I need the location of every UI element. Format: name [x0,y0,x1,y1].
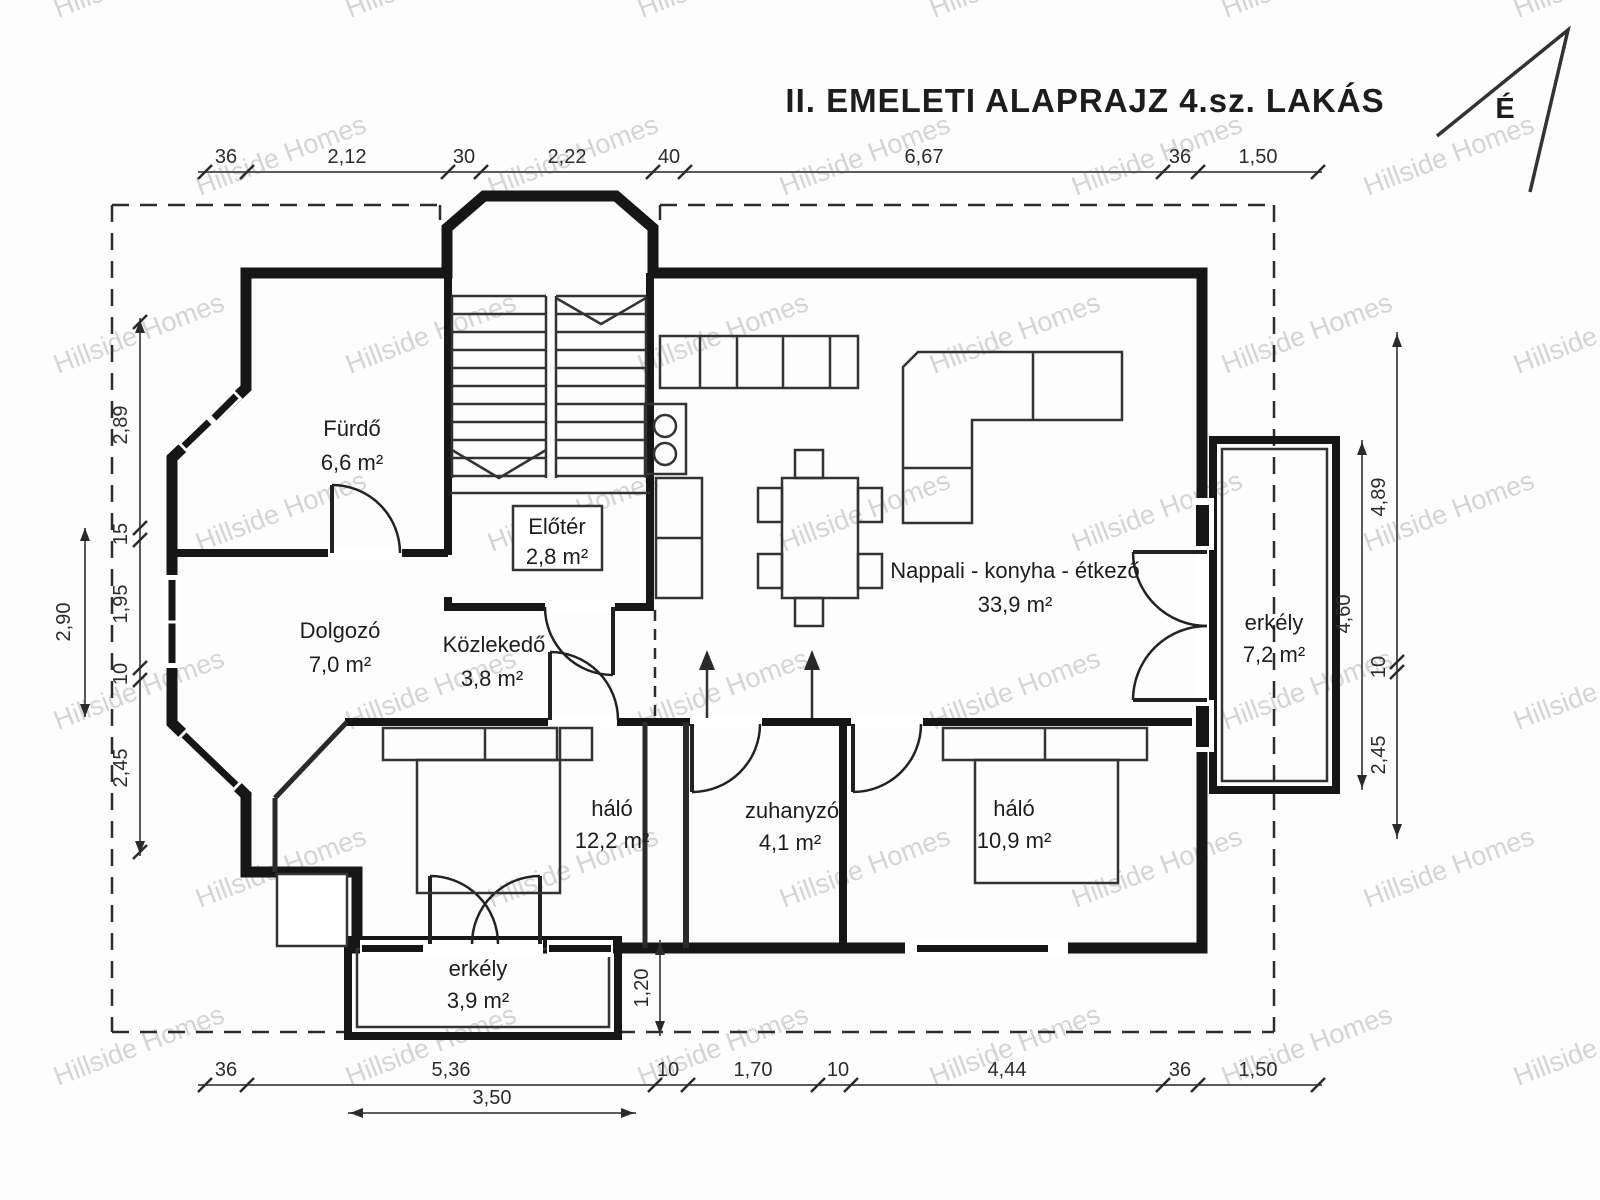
floor-plan-drawing: Hillside HomesHillside HomesHillside Hom… [0,0,1600,1200]
room-area-dolgozo: 7,0 m² [309,652,371,677]
dim-arrow-icon [1392,334,1402,347]
room-name-erkely-also: erkély [449,956,508,981]
furniture [277,336,1147,946]
plan-title: II. EMELETI ALAPRAJZ 4.sz. LAKÁS [785,82,1384,119]
wardrobe [277,874,347,946]
sidelight-top-icon [1196,505,1209,546]
door-zuhanyzo [692,724,760,792]
watermark-text: Hillside Homes [1217,287,1396,380]
nightstand [560,728,592,760]
dim-arrow-icon [621,1108,634,1118]
dim-bottom-7: 1,50 [1239,1059,1278,1081]
room-name-eloter: Előtér [528,514,585,539]
chair [758,488,782,522]
room-name-dolgozo: Dolgozó [300,618,381,643]
dim-left-3: 10 [110,663,132,685]
dim-top-6: 36 [1169,146,1191,168]
dim-balcony-depth: 1,20 [631,969,653,1008]
window-bottom-2-icon [549,945,611,952]
dim-bottom-4: 10 [827,1059,849,1081]
room-area-erkely-jobb: 7,2 m² [1243,642,1305,667]
watermark-text: Hillside Homes [925,287,1104,380]
dim-top-7: 1,50 [1239,146,1278,168]
watermark-text: Hillside Homes [633,0,812,24]
room-area-erkely-also: 3,9 m² [447,988,509,1013]
door-halo2 [853,724,921,792]
room-name-nappali: Nappali - konyha - étkező [890,558,1139,583]
north-arrow-label: É [1495,91,1514,125]
window-bottom-3-icon [917,945,1048,952]
bed-halo2 [943,728,1147,883]
dim-bottom-0: 36 [215,1059,237,1081]
bed-halo1 [383,728,592,893]
chair [795,598,823,626]
sidelight-bottom-icon [1196,706,1209,747]
room-area-zuhanyzo: 4,1 m² [759,830,821,855]
watermark-text: Hillside Homes [341,287,520,380]
watermark-text: Hillside Homes [49,287,228,380]
window-bay-bottom-icon [184,735,236,785]
dim-bottom-1: 5,36 [432,1059,471,1081]
dim-arrow-icon [80,528,90,541]
burner-icon [654,415,676,437]
watermark-text: Hillside Homes [341,0,520,24]
watermark-text: Hillside Homes [925,0,1104,24]
dim-right-inner: 4,60 [1333,595,1355,634]
watermark-text: Hillside Homes [1509,643,1600,736]
dim-left-outer: 2,90 [53,603,75,642]
dim-bottom-3: 1,70 [734,1059,773,1081]
watermark-text: Hillside Homes [1217,0,1396,24]
room-name-kozlekedo: Közlekedő [443,632,546,657]
dim-top-1: 2,12 [328,146,367,168]
room-area-kozlekedo: 3,8 m² [461,666,523,691]
stair-break-icon [452,450,546,478]
dim-bottom-6: 36 [1169,1059,1191,1081]
room-name-furdo: Fürdő [323,416,380,441]
chair [758,554,782,588]
watermark-text: Hillside Homes [1509,999,1600,1092]
watermark-text: Hillside Homes [1359,821,1538,914]
dim-left-1: 15 [110,523,132,545]
room-area-halo2: 10,9 m² [977,828,1052,853]
floor-plan-page: Hillside HomesHillside HomesHillside Hom… [0,0,1600,1200]
room-name-halo2: háló [993,796,1035,821]
dim-left-2: 1,95 [110,585,132,624]
room-name-erkely-jobb: erkély [1245,610,1304,635]
dim-arrow-icon [1357,775,1367,788]
burner-icon [654,443,676,465]
watermark-text: Hillside Homes [49,0,228,24]
dim-arrow-icon [1357,442,1367,455]
dim-arrow-icon [350,1108,363,1118]
dim-bottom-2: 10 [657,1059,679,1081]
room-name-zuhanyzo: zuhanyzó [745,798,839,823]
window-bottom-1-icon [362,945,423,952]
room-area-halo1: 12,2 m² [575,828,650,853]
dim-right-2: 2,45 [1368,736,1390,775]
room-area-nappali: 33,9 m² [978,592,1053,617]
watermark-text: Hillside Homes [1509,0,1600,24]
dim-top-3: 2,22 [548,146,587,168]
dim-top-0: 36 [215,146,237,168]
dim-top-2: 30 [453,146,475,168]
dim-right-0: 4,89 [1368,478,1390,517]
chair [858,554,882,588]
watermark-text: Hillside Homes [49,643,228,736]
door-halo1 [550,652,618,720]
room-name-halo1: háló [591,796,633,821]
dim-top-4: 40 [658,146,680,168]
watermark-text: Hillside Homes [1067,109,1246,202]
watermark-text: Hillside Homes [49,999,228,1092]
dim-left-4: 2,45 [110,749,132,788]
dim-left-0: 2,89 [110,406,132,445]
watermark-text: Hillside Homes [191,465,370,558]
arrow-up-icon [699,650,715,670]
watermark-text: Hillside Homes [1067,465,1246,558]
dim-bottom-secondary: 3,50 [473,1087,512,1109]
room-area-eloter: 2,8 m² [526,544,588,569]
dim-top-5: 6,67 [905,146,944,168]
dim-arrow-icon [1392,824,1402,837]
dim-bottom-5: 4,44 [988,1059,1027,1081]
watermark-text: Hillside Homes [1509,287,1600,380]
stair-direction-icon [556,298,646,324]
chair [795,450,823,478]
door-eloter [545,607,613,675]
room-area-furdo: 6,6 m² [321,450,383,475]
dim-right-1: 10 [1368,656,1390,678]
watermark-text: Hillside Homes [1067,821,1246,914]
